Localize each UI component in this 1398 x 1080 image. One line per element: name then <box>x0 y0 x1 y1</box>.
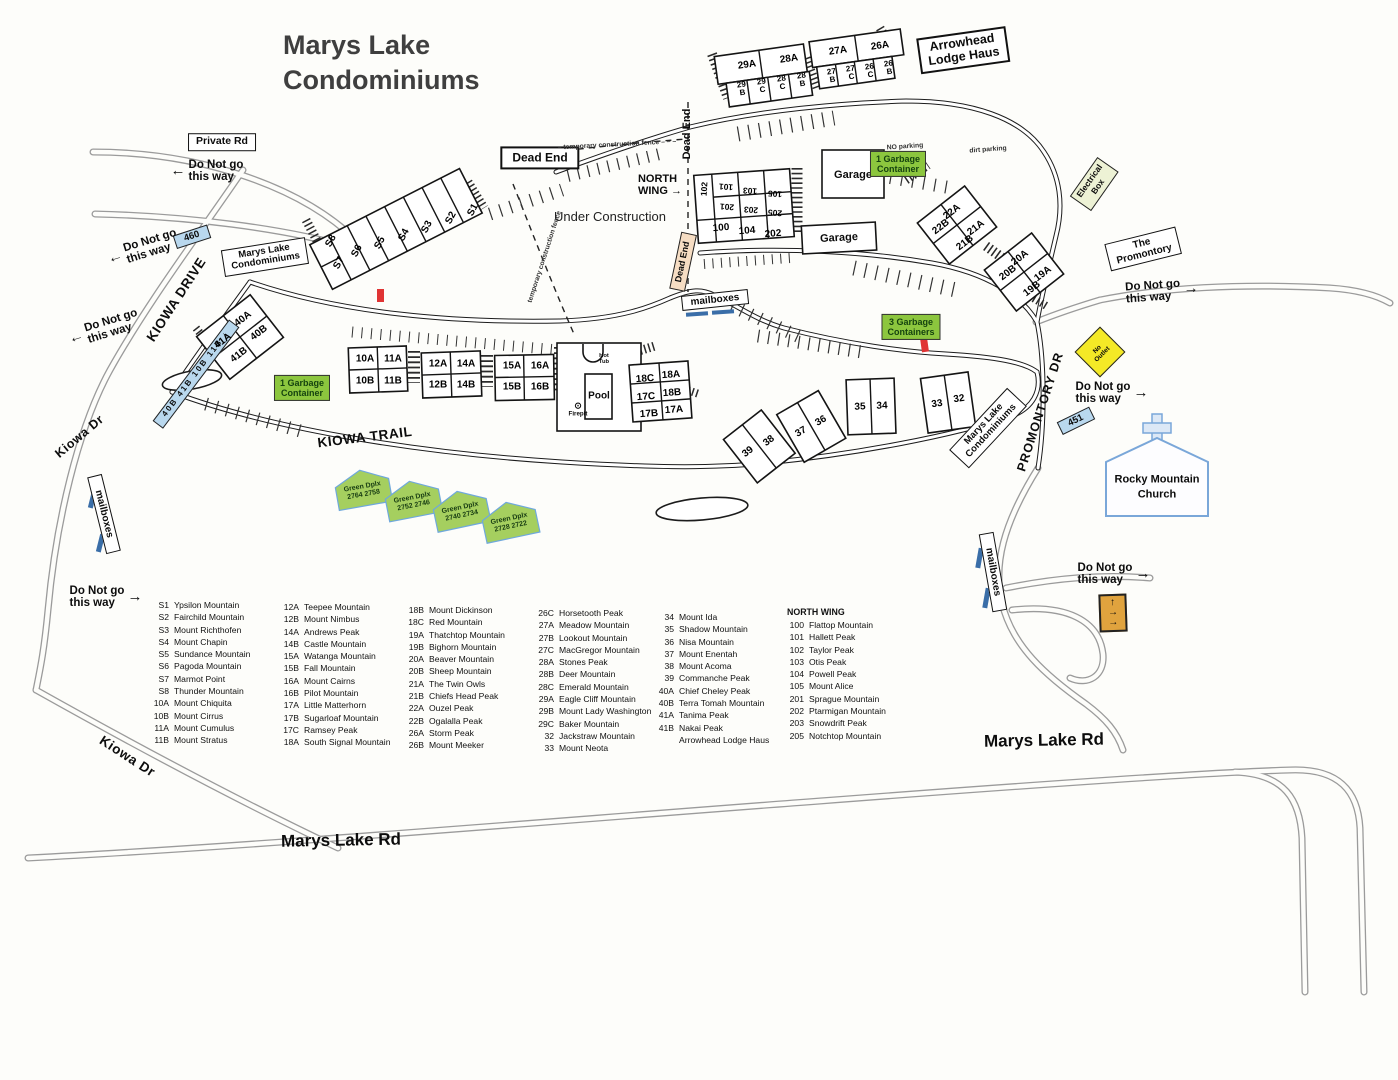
garbage-1-west-line2: Container <box>280 388 324 398</box>
legend-entry: 39Commanche Peak <box>649 672 769 684</box>
legend-code: 28B <box>529 668 554 680</box>
legend-name: Ramsey Peak <box>304 724 358 736</box>
unit-28c: 28 C <box>774 74 789 92</box>
legend-name: Deer Mountain <box>559 668 615 680</box>
building-s-row <box>310 169 482 290</box>
legend-name: Mount Lady Washington <box>559 705 651 717</box>
legend-north-wing-rows: 100Flattop Mountain101Hallett Peak102Tay… <box>779 619 886 742</box>
legend-entry: 203Snowdrift Peak <box>779 717 886 729</box>
north-wing-arrow-icon: → <box>671 185 682 197</box>
legend-name: Beaver Mountain <box>429 653 494 665</box>
right-arrow-icon: → <box>1135 566 1150 583</box>
road-marys-lake-rd-east: Marys Lake Rd <box>984 731 1104 752</box>
legend-code: 201 <box>779 693 804 705</box>
do-not-go-sign-7: Do Not gothis way → <box>70 585 143 609</box>
right-arrow-icon: → <box>1108 618 1118 628</box>
legend-entry: 29CBaker Mountain <box>529 718 651 730</box>
legend-name: The Twin Owls <box>429 678 485 690</box>
legend-entry: S1Ypsilon Mountain <box>144 599 250 611</box>
legend-code <box>649 734 674 746</box>
unit-12b: 12B <box>429 380 447 391</box>
legend-entry: S3Mount Richthofen <box>144 624 250 636</box>
legend-code: 22A <box>399 702 424 714</box>
unit-29c: 29 C <box>754 77 769 95</box>
unit-26b-text: 26 B <box>881 59 896 77</box>
legend-code: 202 <box>779 705 804 717</box>
legend-code: 29C <box>529 718 554 730</box>
legend-entry: 19AThatchtop Mountain <box>399 629 505 641</box>
garbage-1-west-line1: 1 Garbage <box>280 378 324 388</box>
legend-code: 17A <box>274 699 299 711</box>
legend-name: Hallett Peak <box>809 631 855 643</box>
legend-name: Mount Chapin <box>174 636 228 648</box>
legend-name: Terra Tomah Mountain <box>679 697 764 709</box>
legend-code: 40A <box>649 685 674 697</box>
legend-name: Nisa Mountain <box>679 636 734 648</box>
legend-code: 28A <box>529 656 554 668</box>
legend-entry: 102Taylor Peak <box>779 644 886 656</box>
legend-code: 22B <box>399 715 424 727</box>
legend-north-wing-header: NORTH WING <box>787 606 886 619</box>
legend-entry: 14BCastle Mountain <box>274 638 390 650</box>
unit-11a: 11A <box>384 354 402 365</box>
legend-entry: 18ASouth Signal Mountain <box>274 736 390 748</box>
legend-code: 18A <box>274 736 299 748</box>
legend-name: Notchtop Mountain <box>809 730 881 742</box>
legend-code: 14A <box>274 626 299 638</box>
unit-202: 202 <box>764 228 781 240</box>
legend-code: S6 <box>144 660 169 672</box>
legend-name: Teepee Mountain <box>304 601 370 613</box>
unit-14a: 14A <box>457 359 475 370</box>
legend-name: Bighorn Mountain <box>429 641 496 653</box>
legend-name: Horsetooth Peak <box>559 607 623 619</box>
legend-entry: 21AThe Twin Owls <box>399 678 505 690</box>
sign-private-rd: Private Rd <box>188 133 256 151</box>
legend-code: 10B <box>144 710 169 722</box>
legend-name: Lookout Mountain <box>559 632 627 644</box>
legend-code: 28C <box>529 681 554 693</box>
legend-entry: S7Marmot Point <box>144 673 250 685</box>
map-title: Marys Lake Condominiums <box>283 28 480 98</box>
legend-entry: 100Flattop Mountain <box>779 619 886 631</box>
legend-name: Nakai Peak <box>679 722 723 734</box>
legend-entry: 37Mount Enentah <box>649 648 769 660</box>
legend-entry: 41ATanima Peak <box>649 709 769 721</box>
legend-entry: 26BMount Meeker <box>399 739 505 751</box>
legend-name: Pagoda Mountain <box>174 660 241 672</box>
legend-entry: 38Mount Acoma <box>649 660 769 672</box>
legend-code: 103 <box>779 656 804 668</box>
legend-code: 33 <box>529 742 554 754</box>
legend-name: Stones Peak <box>559 656 608 668</box>
unit-26b: 26 B <box>881 59 896 77</box>
legend-name: Mount Chiquita <box>174 697 232 709</box>
legend-entry: 17CRamsey Peak <box>274 724 390 736</box>
unit-15a: 15A <box>503 361 521 372</box>
legend-column-north-wing: NORTH WING 100Flattop Mountain101Hallett… <box>779 606 886 742</box>
unit-27c: 27 C <box>843 64 858 82</box>
unit-11b: 11B <box>384 376 402 387</box>
garage-upper-label: Garage <box>834 169 872 181</box>
legend-entry: 17ALittle Matterhorn <box>274 699 390 711</box>
unit-28c-text: 28 C <box>774 74 789 92</box>
legend-entry: 18BMount Dickinson <box>399 604 505 616</box>
legend-code: 20A <box>399 653 424 665</box>
legend-entry: 27BLookout Mountain <box>529 632 651 644</box>
unit-101: 101 <box>719 182 734 193</box>
church-line2: Church <box>1115 488 1200 503</box>
legend-column-4: 26CHorsetooth Peak27AMeadow Mountain27BL… <box>529 607 651 755</box>
legend-name: Meadow Mountain <box>559 619 629 631</box>
legend-name: Mount Richthofen <box>174 624 241 636</box>
church-line1: Rocky Mountain <box>1115 473 1200 488</box>
garbage-1-north-line1: 1 Garbage <box>876 154 920 164</box>
unit-34: 34 <box>876 400 888 411</box>
legend-name: Ypsilon Mountain <box>174 599 239 611</box>
legend-name: Andrews Peak <box>304 626 359 638</box>
legend-name: Mount Enentah <box>679 648 737 660</box>
map-title-line1: Marys Lake <box>283 28 480 63</box>
garbage-3-line2: Containers <box>887 327 934 337</box>
north-wing-line2: WING → <box>638 185 682 197</box>
unit-10a: 10A <box>356 354 374 365</box>
legend-code: 19A <box>399 629 424 641</box>
legend-entry: 105Mount Alice <box>779 680 886 692</box>
legend-code: 17B <box>274 712 299 724</box>
legend-code: 14B <box>274 638 299 650</box>
unit-100: 100 <box>712 222 729 234</box>
sign-garbage-1-west: 1 Garbage Container <box>274 375 330 401</box>
legend-code: 38 <box>649 660 674 672</box>
legend-name: Red Mountain <box>429 616 483 628</box>
unit-17c: 17C <box>636 391 655 403</box>
legend-name: Powell Peak <box>809 668 856 680</box>
legend-entry: 32Jackstraw Mountain <box>529 730 651 742</box>
legend-entry: 34Mount Ida <box>649 611 769 623</box>
do-not-go-sign-1: ← Do Not gothis way <box>171 159 244 183</box>
legend-entry: 104Powell Peak <box>779 668 886 680</box>
legend-name: Emerald Mountain <box>559 681 629 693</box>
legend-name: Little Matterhorn <box>304 699 366 711</box>
legend-name: Taylor Peak <box>809 644 854 656</box>
legend-name: Mount Alice <box>809 680 853 692</box>
garbage-3-line1: 3 Garbage <box>887 317 934 327</box>
legend-code: 19B <box>399 641 424 653</box>
unit-28b: 28 B <box>794 71 809 89</box>
legend-code: 40B <box>649 697 674 709</box>
legend-code: 27B <box>529 632 554 644</box>
legend-code: 37 <box>649 648 674 660</box>
unit-28b-text: 28 B <box>794 71 809 89</box>
legend-name: Otis Peak <box>809 656 846 668</box>
right-arrow-icon: → <box>127 589 142 606</box>
dead-end-vertical-label: Dead End <box>681 109 693 160</box>
legend-code: 39 <box>649 672 674 684</box>
legend-entry: 10BMount Cirrus <box>144 710 250 722</box>
do-not-go-sign-5: Do Not gothis way → <box>1076 381 1149 405</box>
hot-tub-line2: Tub <box>599 360 609 366</box>
unit-102: 102 <box>699 182 710 197</box>
legend-name: Mount Acoma <box>679 660 732 672</box>
legend-name: Mount Cirrus <box>174 710 223 722</box>
legend-code: 104 <box>779 668 804 680</box>
legend-code: 102 <box>779 644 804 656</box>
legend-code: 12B <box>274 613 299 625</box>
legend-entry: 11AMount Cumulus <box>144 722 250 734</box>
legend-code: 12A <box>274 601 299 613</box>
unit-18b: 18B <box>662 387 681 399</box>
one-way-sign: ↑ → → <box>1098 594 1127 633</box>
legend-column-5: 34Mount Ida35Shadow Mountain36Nisa Mount… <box>649 611 769 746</box>
legend-entry: 41BNakai Peak <box>649 722 769 734</box>
unit-17b: 17B <box>639 408 658 420</box>
legend-entry: S5Sundance Mountain <box>144 648 250 660</box>
legend-code: 11B <box>144 734 169 746</box>
legend-code: 100 <box>779 619 804 631</box>
map-title-line2: Condominiums <box>283 63 480 98</box>
do-not-go-sign-6: Do Not gothis way → <box>1078 562 1151 586</box>
legend-entry: 29BMount Lady Washington <box>529 705 651 717</box>
legend-code: 205 <box>779 730 804 742</box>
dng-line2: this way <box>189 171 244 183</box>
unit-17a: 17A <box>664 404 683 416</box>
do-not-go-sign-4: Do Not gothis way → <box>1125 276 1199 305</box>
legend-entry: 19BBighorn Mountain <box>399 641 505 653</box>
legend-entry: 10AMount Chiquita <box>144 697 250 709</box>
legend-code: 29A <box>529 693 554 705</box>
legend-entry: 16AMount Cairns <box>274 675 390 687</box>
legend-entry: 12ATeepee Mountain <box>274 601 390 613</box>
legend-code: 18C <box>399 616 424 628</box>
legend-code: 20B <box>399 665 424 677</box>
unit-16a: 16A <box>531 361 549 372</box>
unit-26c: 26 C <box>862 62 877 80</box>
legend-entry: S2Fairchild Mountain <box>144 611 250 623</box>
legend-entry: 27CMacGregor Mountain <box>529 644 651 656</box>
legend-name: South Signal Mountain <box>304 736 390 748</box>
sign-garbage-3: 3 Garbage Containers <box>881 314 940 340</box>
legend-name: MacGregor Mountain <box>559 644 640 656</box>
legend-entry: 103Otis Peak <box>779 656 886 668</box>
unit-12a: 12A <box>429 359 447 370</box>
legend-name: Ptarmigan Mountain <box>809 705 886 717</box>
legend-code: 41A <box>649 709 674 721</box>
unit-203: 203 <box>744 205 759 216</box>
legend-name: Mount Cairns <box>304 675 355 687</box>
legend-code: 16B <box>274 687 299 699</box>
legend-name: Fairchild Mountain <box>174 611 244 623</box>
legend-code: 10A <box>144 697 169 709</box>
legend-code: S1 <box>144 599 169 611</box>
legend-name: Marmot Point <box>174 673 225 685</box>
legend-code: 203 <box>779 717 804 729</box>
legend-code: 16A <box>274 675 299 687</box>
left-arrow-icon: ← <box>171 163 186 180</box>
unit-29b: 29 B <box>734 80 749 98</box>
north-wing-label: NORTH WING → <box>638 173 682 197</box>
legend-name: Commanche Peak <box>679 672 750 684</box>
legend-name: Sheep Mountain <box>429 665 492 677</box>
road-marys-lake-rd-south: Marys Lake Rd <box>281 831 401 852</box>
unit-205: 205 <box>768 208 783 219</box>
green-duplex-houses <box>333 466 540 544</box>
legend-name: Sundance Mountain <box>174 648 250 660</box>
legend-code: S7 <box>144 673 169 685</box>
unit-27c-text: 27 C <box>843 64 858 82</box>
legend-entry: 101Hallett Peak <box>779 631 886 643</box>
legend-code: 26B <box>399 739 424 751</box>
legend-entry: 28AStones Peak <box>529 656 651 668</box>
legend-entry: 26AStorm Peak <box>399 727 505 739</box>
legend-entry: 35Shadow Mountain <box>649 623 769 635</box>
legend-code: 35 <box>649 623 674 635</box>
hot-tub-label: Hot Tub <box>599 354 609 366</box>
legend-column-2: 12ATeepee Mountain12BMount Nimbus14AAndr… <box>274 601 390 749</box>
legend-name: Sprague Mountain <box>809 693 879 705</box>
legend-code: 36 <box>649 636 674 648</box>
legend-entry: 202Ptarmigan Mountain <box>779 705 886 717</box>
legend-entry: 33Mount Neota <box>529 742 651 754</box>
garage-lower-label: Garage <box>820 231 859 245</box>
legend-entry: 20ABeaver Mountain <box>399 653 505 665</box>
garbage-1-north-line2: Container <box>876 164 920 174</box>
unit-105: 105 <box>768 189 783 200</box>
legend-name: Mount Cumulus <box>174 722 234 734</box>
north-wing-line2-text: WING <box>638 185 668 197</box>
pool-label: Pool <box>588 391 610 402</box>
legend-code: 26C <box>529 607 554 619</box>
legend-code: S8 <box>144 685 169 697</box>
legend-code: 105 <box>779 680 804 692</box>
legend-code: S3 <box>144 624 169 636</box>
legend-entry: 26CHorsetooth Peak <box>529 607 651 619</box>
legend-entry: 28BDeer Mountain <box>529 668 651 680</box>
unit-32: 32 <box>953 393 966 405</box>
legend-entry: 201Sprague Mountain <box>779 693 886 705</box>
legend-code: 32 <box>529 730 554 742</box>
firepit-icon: ⊙ <box>569 400 588 410</box>
legend-name: Mount Neota <box>559 742 608 754</box>
legend-code: 11A <box>144 722 169 734</box>
legend-code: 41B <box>649 722 674 734</box>
legend-code: 18B <box>399 604 424 616</box>
legend-name: Mount Ida <box>679 611 717 623</box>
legend-code: 26A <box>399 727 424 739</box>
legend-entry: 27AMeadow Mountain <box>529 619 651 631</box>
legend-code: 27C <box>529 644 554 656</box>
legend-name: Mount Stratus <box>174 734 228 746</box>
building-33-32 <box>920 372 975 433</box>
legend-name: Pilot Mountain <box>304 687 358 699</box>
dng-line2: this way <box>1078 574 1133 586</box>
legend-code: 15B <box>274 662 299 674</box>
firepit-label: ⊙ Firepit <box>569 400 588 417</box>
legend-entry: 11BMount Stratus <box>144 734 250 746</box>
site-map: Marys Lake Condominiums Private Rd Dead … <box>0 0 1398 1080</box>
dng-line1: Do Not go <box>189 159 244 171</box>
legend-name: Mount Meeker <box>429 739 484 751</box>
unit-27b-text: 27 B <box>824 67 839 85</box>
legend-name: Storm Peak <box>429 727 474 739</box>
legend-name: Watanga Mountain <box>304 650 376 662</box>
unit-14b: 14B <box>457 380 475 391</box>
legend-entry: 29AEagle Cliff Mountain <box>529 693 651 705</box>
under-construction-label: Under Construction <box>554 210 666 224</box>
legend-entry: 22AOuzel Peak <box>399 702 505 714</box>
unit-26c-text: 26 C <box>862 62 877 80</box>
legend-entry: Arrowhead Lodge Haus <box>649 734 769 746</box>
legend-code: 27A <box>529 619 554 631</box>
firepit-text: Firepit <box>569 411 588 418</box>
legend-name: Arrowhead Lodge Haus <box>679 734 769 746</box>
legend-name: Chiefs Head Peak <box>429 690 498 702</box>
legend-name: Tanima Peak <box>679 709 729 721</box>
dng-line1: Do Not go <box>70 585 125 597</box>
legend-name: Mount Dickinson <box>429 604 493 616</box>
legend-code: 101 <box>779 631 804 643</box>
legend-code: 17C <box>274 724 299 736</box>
unit-201: 201 <box>720 202 735 213</box>
legend-code: S4 <box>144 636 169 648</box>
sign-garbage-1-north: 1 Garbage Container <box>870 151 926 177</box>
legend-name: Eagle Cliff Mountain <box>559 693 636 705</box>
unit-33: 33 <box>931 398 944 410</box>
legend-entry: 16BPilot Mountain <box>274 687 390 699</box>
legend-name: Ogalalla Peak <box>429 715 483 727</box>
legend-code: 21B <box>399 690 424 702</box>
legend-name: Thunder Mountain <box>174 685 244 697</box>
dng-line1: Do Not go <box>1078 562 1133 574</box>
legend-entry: S8Thunder Mountain <box>144 685 250 697</box>
legend-name: Flattop Mountain <box>809 619 873 631</box>
legend-entry: 22BOgalalla Peak <box>399 715 505 727</box>
legend-name: Snowdrift Peak <box>809 717 867 729</box>
legend-entry: 21BChiefs Head Peak <box>399 690 505 702</box>
dng-line1: Do Not go <box>1076 381 1131 393</box>
unit-29c-text: 29 C <box>754 77 769 95</box>
legend-name: Ouzel Peak <box>429 702 473 714</box>
legend-name: Castle Mountain <box>304 638 366 650</box>
legend-name: Baker Mountain <box>559 718 619 730</box>
legend-entry: 205Notchtop Mountain <box>779 730 886 742</box>
legend-entry: 36Nisa Mountain <box>649 636 769 648</box>
legend-name: Thatchtop Mountain <box>429 629 505 641</box>
unit-103: 103 <box>743 186 758 197</box>
legend-entry: 12BMount Nimbus <box>274 613 390 625</box>
dng-line2: this way <box>70 597 125 609</box>
unit-18a: 18A <box>661 369 680 381</box>
unit-10b: 10B <box>356 376 374 387</box>
legend-code: S5 <box>144 648 169 660</box>
legend-name: Fall Mountain <box>304 662 356 674</box>
legend-name: Mount Nimbus <box>304 613 359 625</box>
legend-name: Shadow Mountain <box>679 623 748 635</box>
legend-entry: 40BTerra Tomah Mountain <box>649 697 769 709</box>
legend-name: Chief Cheley Peak <box>679 685 750 697</box>
legend-code: S2 <box>144 611 169 623</box>
north-wing-line1: NORTH <box>638 173 682 185</box>
legend-entry: 14AAndrews Peak <box>274 626 390 638</box>
legend-entry: 18CRed Mountain <box>399 616 505 628</box>
unit-29b-text: 29 B <box>734 80 749 98</box>
legend-entry: S6Pagoda Mountain <box>144 660 250 672</box>
legend-name: Sugarloaf Mountain <box>304 712 379 724</box>
legend-entry: 17BSugarloaf Mountain <box>274 712 390 724</box>
unit-18c: 18C <box>635 373 654 385</box>
right-arrow-icon: → <box>1183 280 1199 298</box>
legend-column-3: 18BMount Dickinson18CRed Mountain19AThat… <box>399 604 505 752</box>
